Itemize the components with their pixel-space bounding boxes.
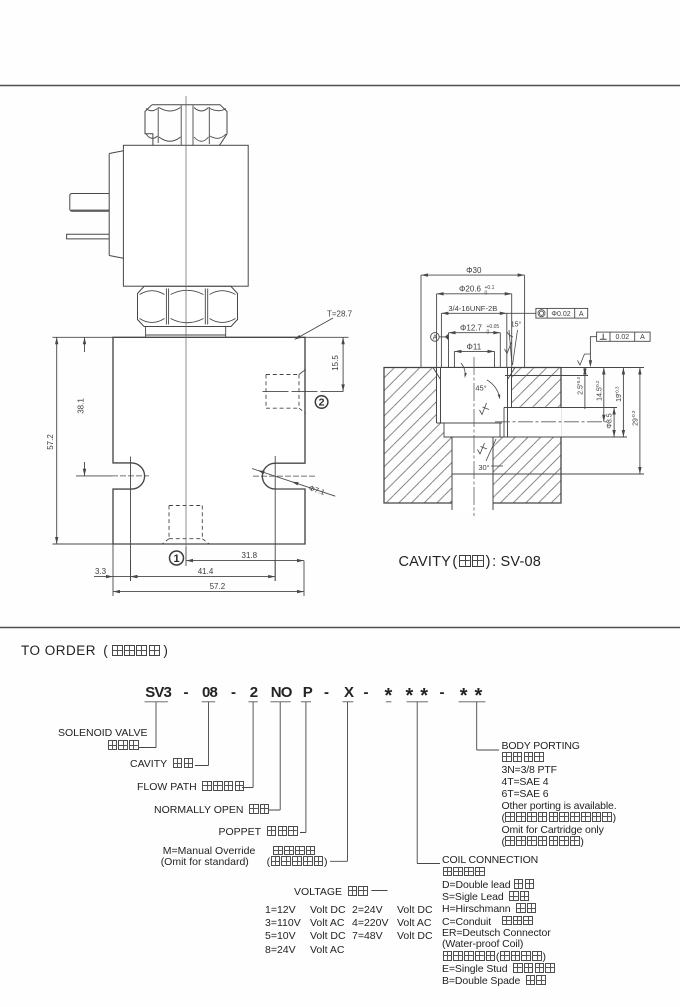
svg-text:A: A	[640, 334, 645, 341]
svg-text:45°: 45°	[475, 384, 486, 393]
svg-text:A: A	[579, 311, 584, 318]
svg-text:30°: 30°	[478, 463, 489, 472]
svg-text:-0.3: -0.3	[631, 410, 636, 418]
svg-text:+0.3: +0.3	[576, 377, 581, 386]
svg-text:0: 0	[487, 329, 490, 335]
svg-text:15.5: 15.5	[331, 355, 340, 371]
svg-text:-0.2: -0.2	[595, 380, 600, 388]
svg-text:15°: 15°	[511, 321, 522, 329]
svg-text:Φ20.6: Φ20.6	[459, 285, 482, 294]
svg-text:1: 1	[173, 553, 179, 565]
svg-text:57.2: 57.2	[210, 582, 226, 591]
svg-text:2: 2	[319, 397, 325, 409]
svg-text:Φ30: Φ30	[466, 266, 482, 275]
svg-text:3/4-16UNF-2B: 3/4-16UNF-2B	[448, 304, 497, 313]
svg-text:+0.3: +0.3	[615, 386, 620, 395]
svg-text:38.1: 38.1	[77, 398, 86, 414]
svg-text:0.02: 0.02	[615, 334, 629, 341]
svg-text:Φ8.5: Φ8.5	[607, 413, 614, 428]
svg-text:3.3: 3.3	[95, 567, 107, 576]
svg-text:A: A	[433, 335, 438, 342]
svg-text:Φ0.02: Φ0.02	[551, 311, 570, 318]
svg-text:31.8: 31.8	[242, 551, 258, 560]
svg-text:Φ12.7: Φ12.7	[460, 324, 483, 333]
svg-text:T=28.7: T=28.7	[327, 310, 353, 319]
svg-text:Φ7.1: Φ7.1	[308, 483, 326, 497]
svg-text:41.4: 41.4	[198, 567, 214, 576]
svg-text:Φ11: Φ11	[466, 342, 481, 351]
svg-text:0: 0	[485, 290, 488, 296]
svg-text:57.2: 57.2	[46, 434, 55, 450]
